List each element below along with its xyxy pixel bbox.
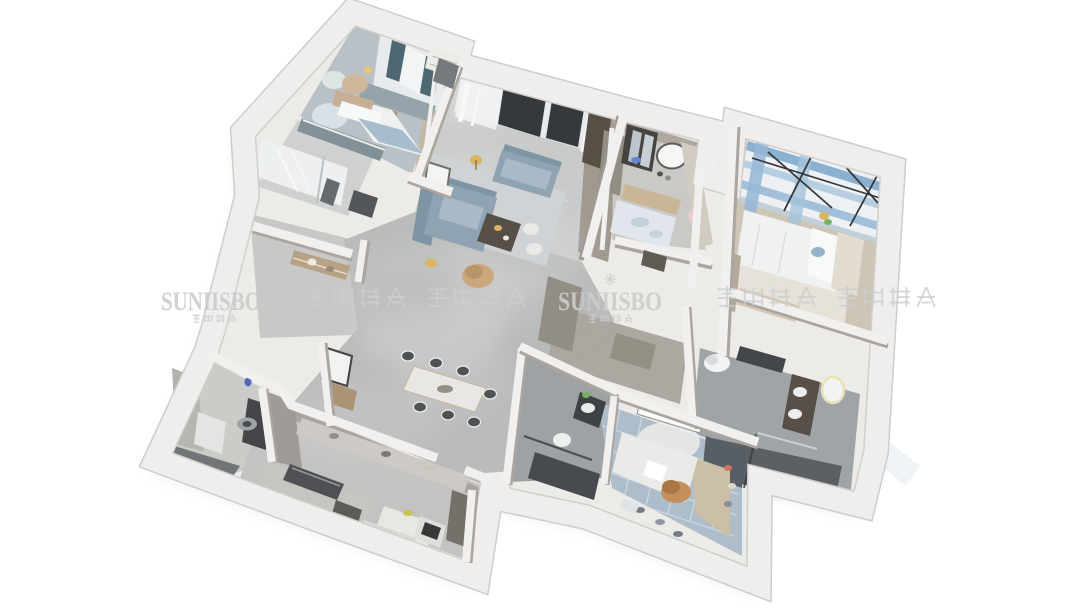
svg-text:SUNIISBO: SUNIISBO <box>161 287 261 316</box>
svg-text:SUNIISBO: SUNIISBO <box>558 287 662 316</box>
